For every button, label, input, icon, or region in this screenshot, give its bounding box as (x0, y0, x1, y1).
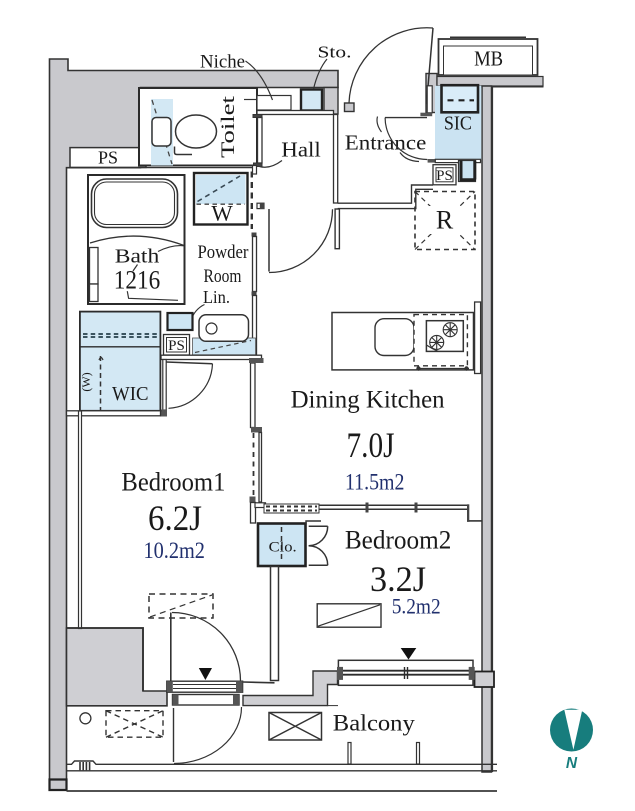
svg-text:Room: Room (204, 267, 243, 287)
svg-text:(W): (W) (79, 372, 93, 391)
svg-text:5.2m2: 5.2m2 (392, 594, 441, 619)
svg-text:Bedroom2: Bedroom2 (345, 526, 452, 555)
svg-text:Dining Kitchen: Dining Kitchen (291, 387, 445, 414)
svg-text:Clo.: Clo. (269, 540, 297, 556)
svg-text:PS: PS (168, 338, 185, 354)
svg-text:10.2m2: 10.2m2 (143, 538, 205, 564)
svg-text:SIC: SIC (444, 113, 472, 135)
svg-text:Powder: Powder (198, 243, 249, 263)
svg-text:PS: PS (436, 168, 453, 184)
svg-text:R: R (436, 206, 454, 235)
svg-text:1216: 1216 (114, 265, 161, 295)
svg-text:7.0J: 7.0J (347, 425, 395, 465)
svg-text:6.2J: 6.2J (148, 498, 202, 538)
svg-text:WIC: WIC (112, 384, 149, 405)
svg-text:Entrance: Entrance (345, 131, 427, 155)
svg-text:MB: MB (474, 47, 503, 71)
svg-text:PS: PS (98, 148, 118, 168)
svg-text:Lin.: Lin. (203, 287, 230, 307)
svg-text:Bedroom1: Bedroom1 (121, 468, 225, 497)
svg-text:Niche: Niche (200, 52, 245, 73)
svg-text:Toilet: Toilet (218, 95, 239, 158)
svg-text:N: N (566, 755, 578, 772)
svg-text:Hall: Hall (281, 138, 321, 162)
svg-text:Balcony: Balcony (333, 711, 416, 736)
svg-text:11.5m2: 11.5m2 (345, 470, 405, 496)
svg-text:W: W (211, 201, 233, 226)
svg-text:Sto.: Sto. (318, 43, 352, 62)
